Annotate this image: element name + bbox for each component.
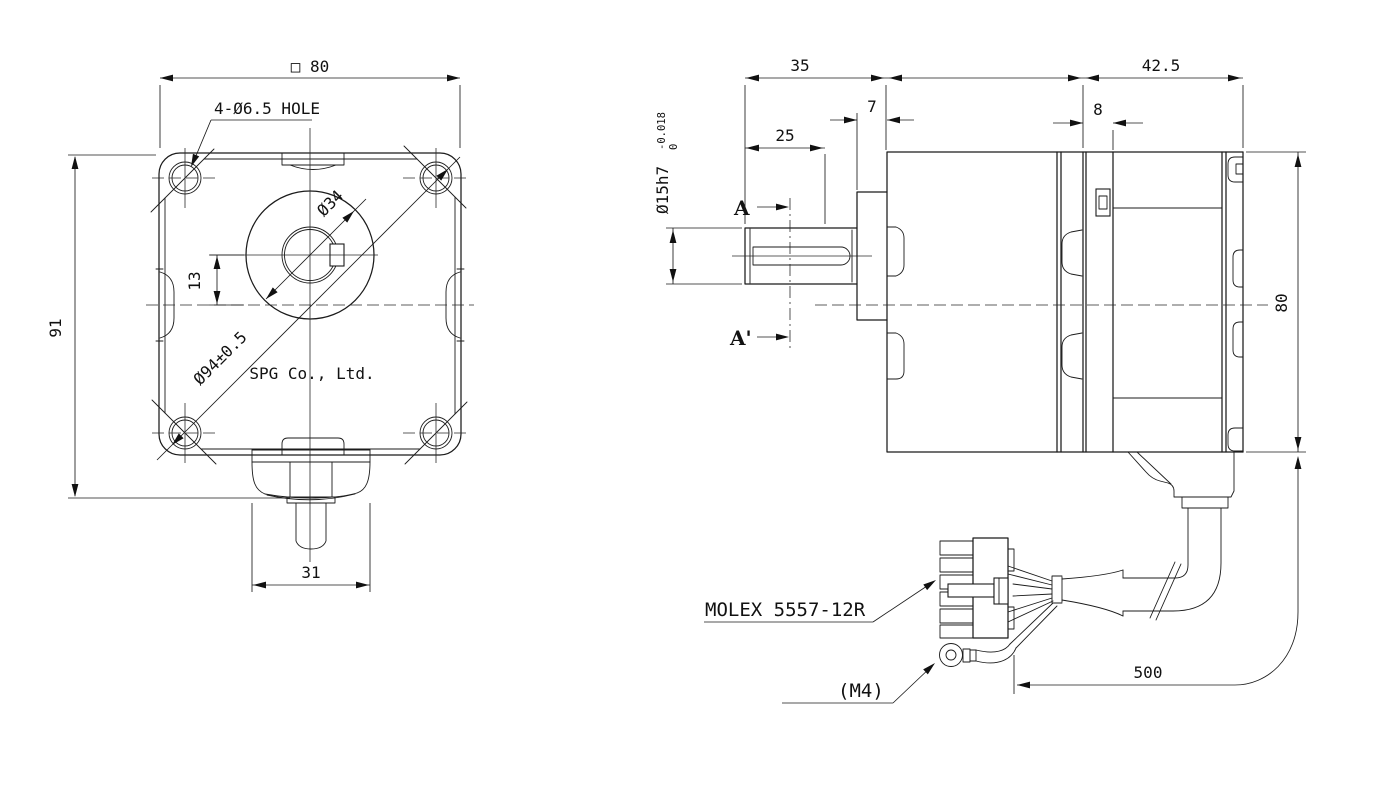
ring-terminal bbox=[940, 603, 1058, 667]
terminal-callout: (M4) bbox=[782, 661, 937, 703]
wire-bundle bbox=[1008, 566, 1053, 622]
front-view: SPG Co., Ltd. □ 80 91 13 31 bbox=[46, 57, 474, 592]
hole-top-right bbox=[403, 148, 469, 208]
connector-callout: MOLEX 5557-12R bbox=[704, 577, 938, 622]
motor-body bbox=[1083, 152, 1243, 452]
dim-hub-31-text: 31 bbox=[301, 563, 320, 582]
gearbox-body bbox=[887, 152, 1243, 452]
terminal-clip bbox=[1096, 189, 1110, 216]
dim-height-91-text: 91 bbox=[46, 318, 65, 337]
dim-keyway-25: 25 bbox=[745, 126, 825, 224]
dim-boss-7-text: 7 bbox=[867, 97, 877, 116]
shaft-tol-lower-text: -0.018 bbox=[656, 112, 668, 150]
cable-boot bbox=[1128, 452, 1234, 508]
dim-cable-500: 500 bbox=[1014, 456, 1301, 694]
dim-ring-8: 8 bbox=[1053, 100, 1143, 150]
molex-connector bbox=[940, 538, 1053, 638]
dim-height-91: 91 bbox=[46, 155, 290, 498]
shaft-dia-text: Ø15h7 bbox=[653, 166, 672, 214]
company-label: SPG Co., Ltd. bbox=[249, 364, 374, 383]
holes-callout-text: 4-Ø6.5 HOLE bbox=[214, 99, 320, 118]
dim-offset-13-text: 13 bbox=[185, 271, 204, 290]
dim-cable-500-text: 500 bbox=[1134, 663, 1163, 682]
dim-boss-7: 7 bbox=[830, 97, 914, 190]
dim-height-80-text: 80 bbox=[1272, 293, 1291, 312]
dim-boss-34: Ø34 bbox=[264, 186, 366, 301]
dim-motor-425-text: 42.5 bbox=[1142, 56, 1181, 75]
vent-slot bbox=[1233, 322, 1243, 357]
dim-bolt-circle-94-text: Ø94±0.5 bbox=[190, 328, 251, 389]
cable bbox=[1052, 508, 1221, 620]
section-a-label: A bbox=[733, 196, 750, 220]
dim-keyway-25-text: 25 bbox=[775, 126, 794, 145]
terminal-callout-text: (M4) bbox=[838, 680, 884, 702]
dim-chain-top: 35 42.5 bbox=[745, 56, 1243, 224]
connector-latch bbox=[948, 584, 994, 597]
dim-ring-8-text: 8 bbox=[1093, 100, 1103, 119]
gearmotor-drawing: SPG Co., Ltd. □ 80 91 13 31 bbox=[0, 0, 1394, 786]
section-a-prime-label: A' bbox=[729, 326, 752, 350]
hole-top-left bbox=[152, 148, 218, 208]
dim-square-80-text: □ 80 bbox=[291, 57, 330, 76]
technical-drawing-canvas: SPG Co., Ltd. □ 80 91 13 31 bbox=[0, 0, 1394, 786]
dim-hub-31: 31 bbox=[252, 503, 370, 592]
holes-callout: 4-Ø6.5 HOLE bbox=[188, 99, 320, 168]
shaft-tol-upper-text: 0 bbox=[668, 144, 680, 150]
output-shaft bbox=[732, 228, 872, 284]
dim-shaft-35-text: 35 bbox=[790, 56, 809, 75]
dim-shaft-dia: Ø15h7 0 -0.018 bbox=[653, 112, 742, 284]
hole-bottom-left bbox=[152, 403, 218, 463]
section-a-a: A A' bbox=[729, 196, 790, 352]
dim-bolt-circle-94: Ø94±0.5 bbox=[157, 157, 460, 460]
connector-callout-text: MOLEX 5557-12R bbox=[705, 599, 866, 621]
bottom-housing bbox=[252, 450, 370, 549]
side-view: A A' bbox=[653, 56, 1306, 703]
dim-height-80: 80 bbox=[1246, 152, 1306, 452]
dim-offset-13: 13 bbox=[185, 255, 244, 305]
hole-bottom-right bbox=[403, 403, 469, 463]
vent-slot bbox=[1233, 250, 1243, 287]
